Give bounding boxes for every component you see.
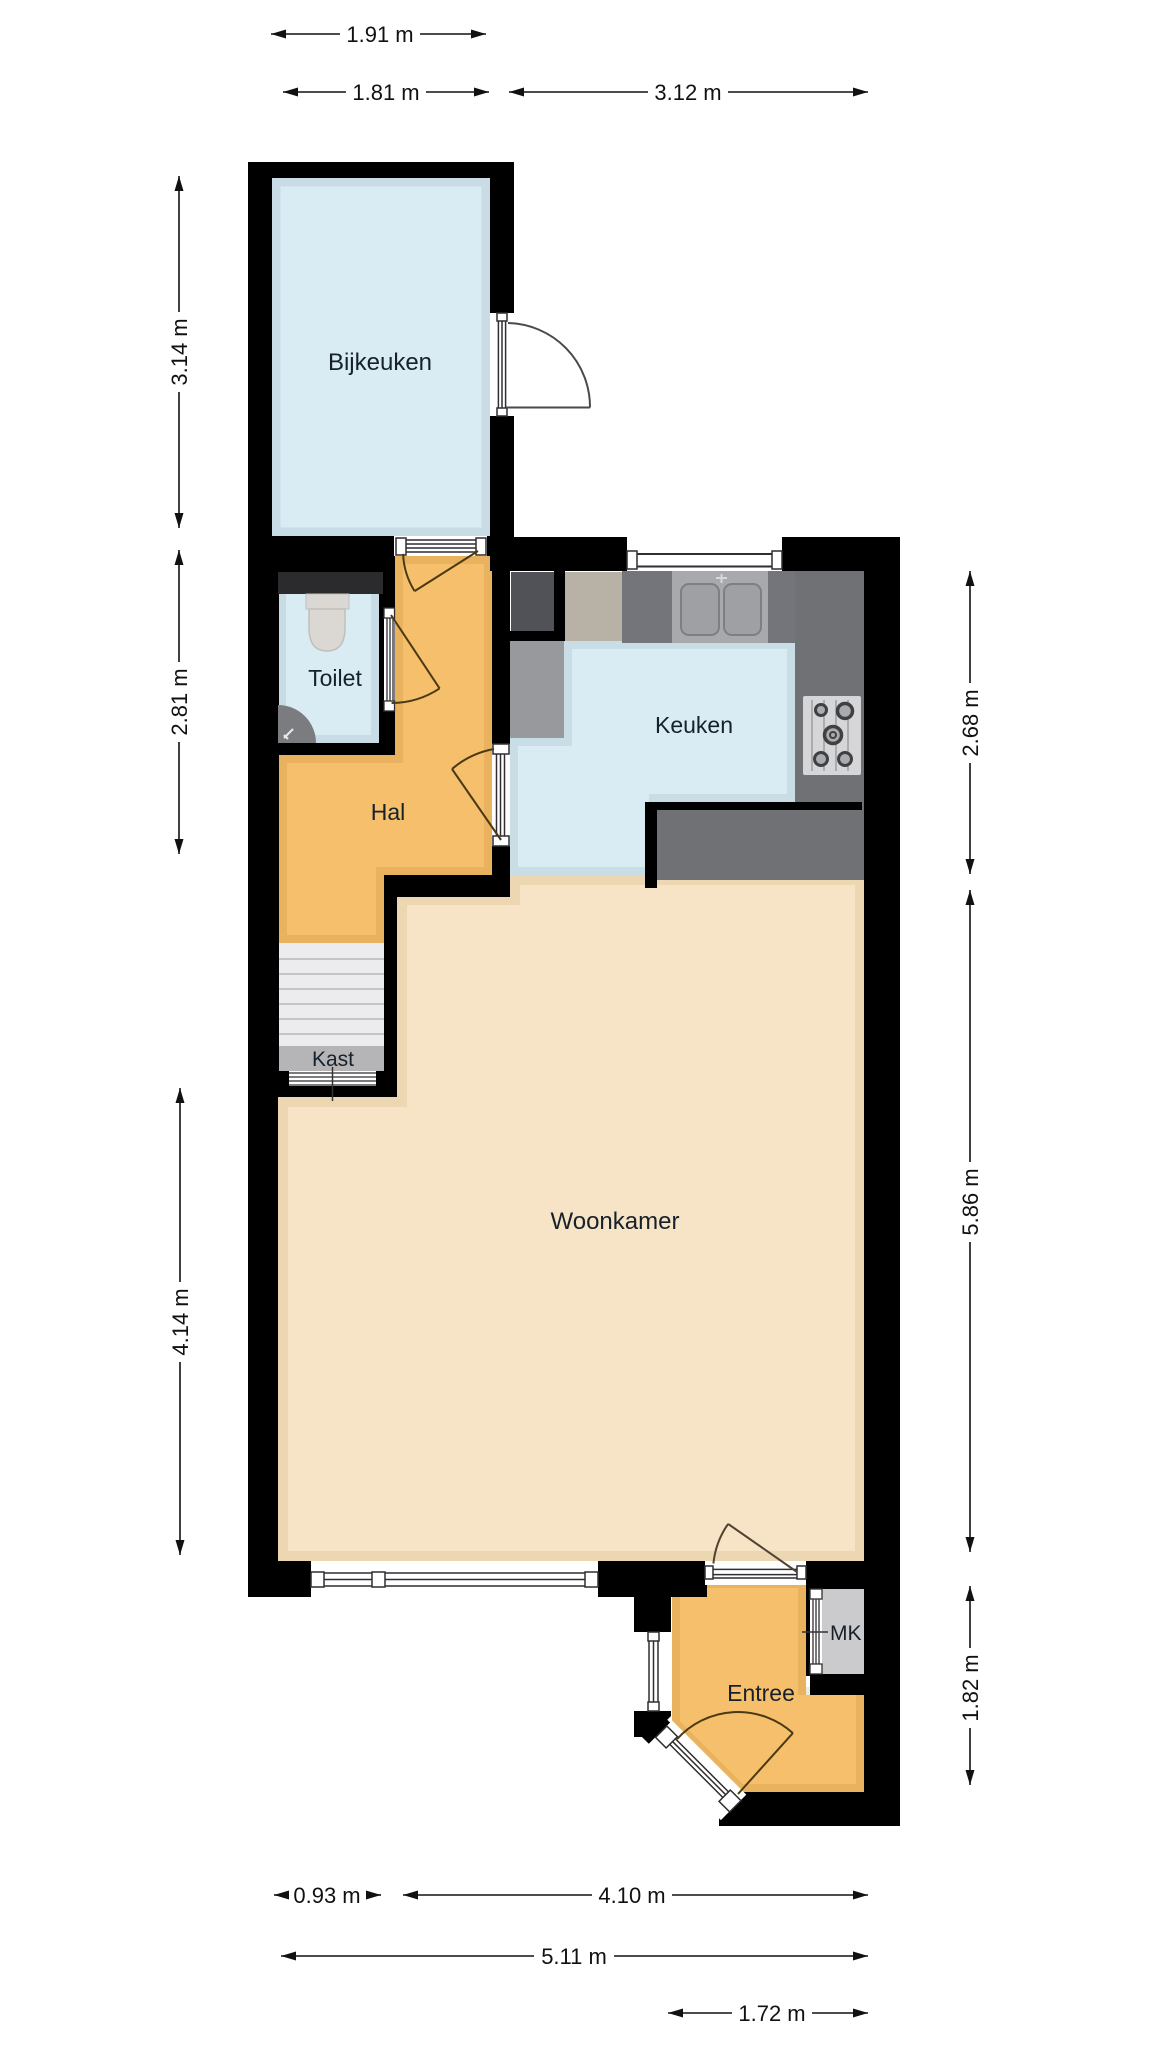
svg-text:4.10 m: 4.10 m	[598, 1883, 665, 1908]
svg-text:3.14 m: 3.14 m	[167, 318, 192, 385]
svg-text:5.11 m: 5.11 m	[541, 1944, 607, 1969]
svg-text:2.81 m: 2.81 m	[167, 668, 192, 735]
svg-text:MK: MK	[830, 1622, 862, 1645]
svg-text:Keuken: Keuken	[655, 712, 733, 738]
svg-text:5.86 m: 5.86 m	[958, 1168, 983, 1235]
svg-text:Toilet: Toilet	[308, 665, 362, 691]
svg-text:1.91 m: 1.91 m	[346, 22, 413, 47]
svg-text:Entree: Entree	[727, 1680, 795, 1706]
svg-text:1.82 m: 1.82 m	[958, 1654, 983, 1721]
svg-text:4.14 m: 4.14 m	[168, 1288, 193, 1355]
svg-text:3.12 m: 3.12 m	[654, 80, 721, 105]
svg-text:0.93 m: 0.93 m	[293, 1883, 360, 1908]
svg-text:Hal: Hal	[371, 799, 406, 825]
svg-text:2.68 m: 2.68 m	[958, 689, 983, 756]
svg-text:Woonkamer: Woonkamer	[551, 1208, 680, 1235]
svg-text:1.72 m: 1.72 m	[738, 2001, 805, 2026]
svg-text:1.81 m: 1.81 m	[352, 80, 419, 105]
svg-text:Bijkeuken: Bijkeuken	[328, 349, 432, 376]
